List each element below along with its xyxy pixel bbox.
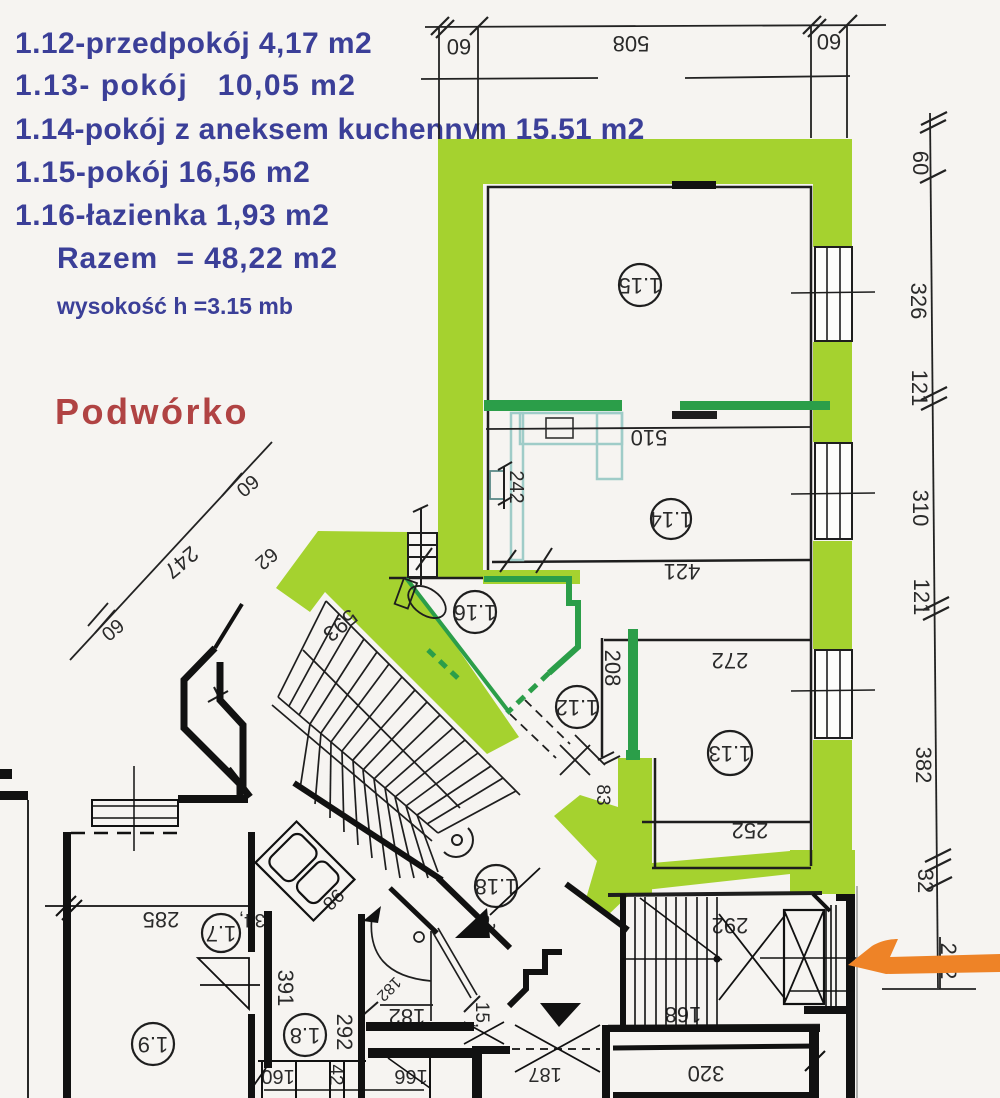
svg-text:83: 83	[592, 784, 613, 805]
svg-text:1.8: 1.8	[290, 1023, 321, 1048]
svg-text:187: 187	[528, 1063, 561, 1085]
svg-text:wysokość h =3.15 mb: wysokość h =3.15 mb	[56, 293, 293, 319]
svg-text:310: 310	[908, 490, 933, 527]
svg-text:168: 168	[665, 1002, 702, 1027]
svg-text:1.13- pokój 10,05 m2: 1.13- pokój 10,05 m2	[15, 69, 356, 102]
svg-text:60: 60	[908, 151, 933, 175]
svg-text:292: 292	[332, 1014, 357, 1051]
svg-text:508: 508	[613, 31, 650, 56]
svg-text:Podwórko: Podwórko	[55, 391, 249, 432]
svg-text:1.16-łazienka 1,93 m2: 1.16-łazienka 1,93 m2	[15, 199, 329, 232]
svg-text:15,: 15,	[471, 1002, 492, 1028]
svg-text:510: 510	[631, 425, 668, 450]
svg-text:1.9: 1.9	[138, 1032, 169, 1057]
svg-text:Razem = 48,22 m2: Razem = 48,22 m2	[57, 242, 338, 275]
svg-text:285: 285	[143, 907, 180, 932]
svg-text:42: 42	[325, 1064, 346, 1085]
svg-text:252: 252	[732, 818, 769, 843]
svg-text:272: 272	[712, 648, 749, 673]
svg-text:382: 382	[911, 747, 936, 784]
svg-text:421: 421	[664, 559, 701, 584]
svg-text:1.12: 1.12	[556, 695, 599, 720]
svg-text:60: 60	[447, 34, 471, 59]
svg-text:391: 391	[273, 970, 298, 1007]
svg-text:1.12-przedpokój 4,17 m2: 1.12-przedpokój 4,17 m2	[15, 27, 372, 60]
svg-text:1.14: 1.14	[650, 507, 693, 532]
svg-text:1.15: 1.15	[619, 273, 662, 298]
svg-text:121: 121	[909, 579, 934, 616]
svg-text:121: 121	[907, 370, 932, 407]
svg-text:1.16: 1.16	[454, 600, 497, 625]
svg-text:1.13: 1.13	[709, 741, 752, 766]
svg-text:320: 320	[688, 1061, 725, 1086]
svg-text:32: 32	[913, 869, 938, 893]
svg-text:1.7: 1.7	[206, 921, 237, 946]
svg-text:326: 326	[906, 283, 931, 320]
svg-text:208: 208	[600, 650, 625, 687]
svg-text:60: 60	[817, 29, 841, 54]
svg-text:1.15-pokój 16,56 m2: 1.15-pokój 16,56 m2	[15, 156, 310, 189]
